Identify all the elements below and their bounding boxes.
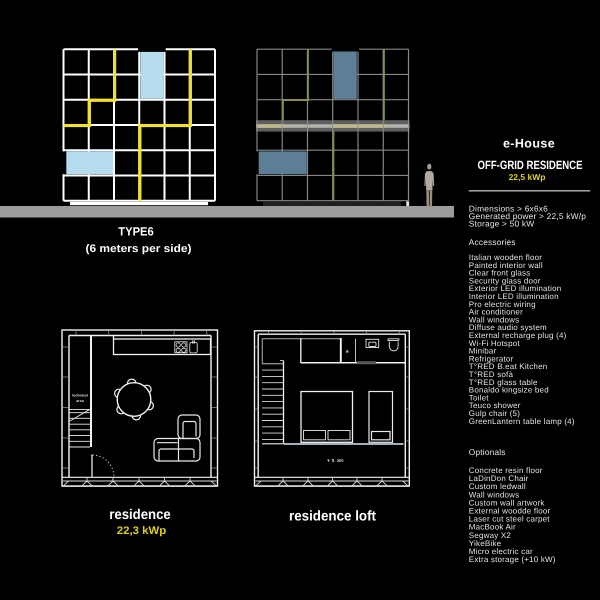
svg-text:technical: technical <box>72 393 88 397</box>
svg-text:(6 meters per side): (6 meters per side) <box>86 243 192 255</box>
svg-text:TYPE6: TYPE6 <box>118 225 154 239</box>
svg-text:area: area <box>76 399 84 403</box>
svg-text:22,5 kWp: 22,5 kWp <box>509 172 546 182</box>
svg-text:22,3 kWp: 22,3 kWp <box>117 525 167 537</box>
svg-text:residence loft: residence loft <box>289 508 376 524</box>
svg-text:Accessories: Accessories <box>469 237 516 247</box>
svg-text:GreenLantern table lamp (4): GreenLantern table lamp (4) <box>469 417 575 426</box>
svg-text:Storage > 50 kW: Storage > 50 kW <box>469 219 535 229</box>
svg-text:▼ fl. 300: ▼ fl. 300 <box>326 458 344 463</box>
svg-text:Optionals: Optionals <box>469 447 506 457</box>
svg-text:residence: residence <box>109 507 171 523</box>
svg-text:OFF-GRID RESIDENCE: OFF-GRID RESIDENCE <box>478 158 583 172</box>
svg-text:Extra storage (+10 kW): Extra storage (+10 kW) <box>469 555 556 564</box>
svg-text:e-House: e-House <box>503 137 555 151</box>
